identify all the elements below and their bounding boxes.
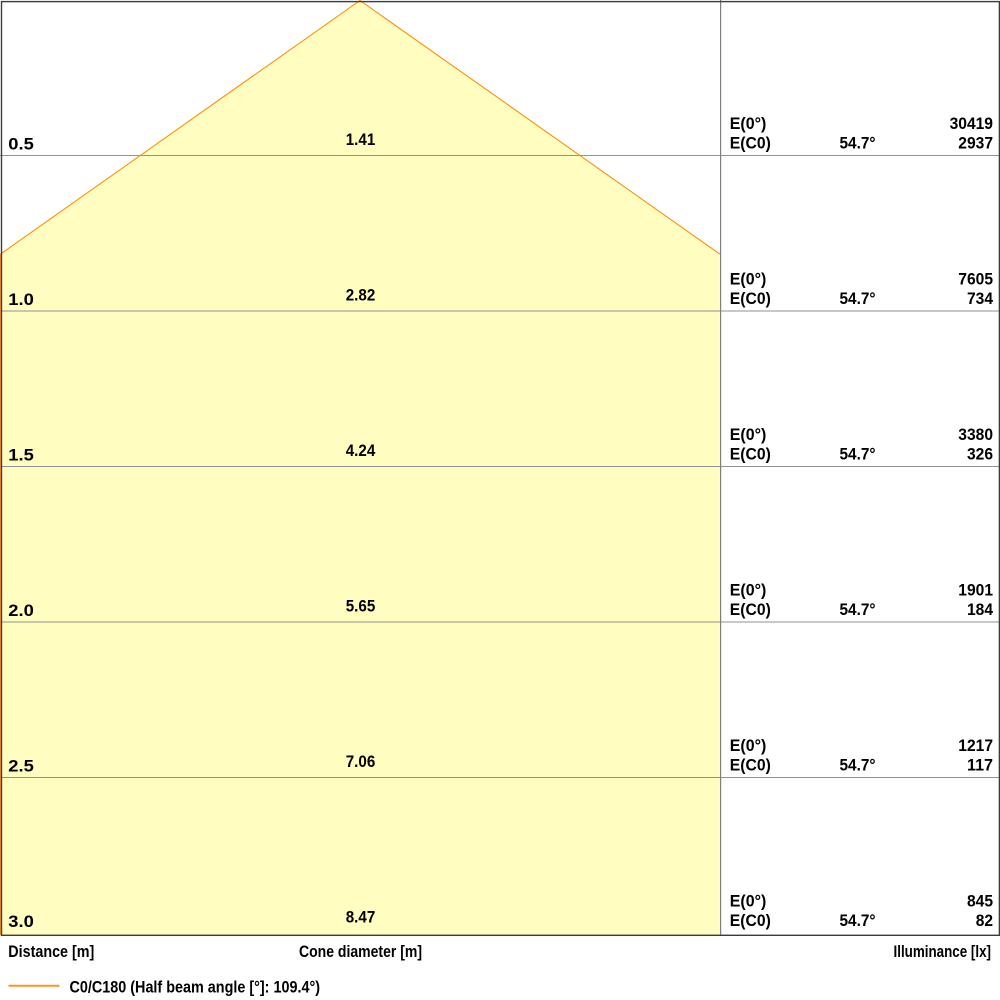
svg-text:1.0: 1.0 <box>8 291 34 309</box>
svg-text:1.5: 1.5 <box>8 447 34 465</box>
svg-text:0.5: 0.5 <box>8 136 34 154</box>
svg-text:2.82: 2.82 <box>346 287 376 305</box>
svg-text:184: 184 <box>967 601 994 619</box>
svg-text:326: 326 <box>967 446 993 464</box>
svg-text:5.65: 5.65 <box>346 598 376 616</box>
svg-text:1217: 1217 <box>958 737 993 755</box>
svg-text:117: 117 <box>967 757 993 775</box>
svg-text:54.7°: 54.7° <box>840 135 876 153</box>
svg-text:E(C0): E(C0) <box>730 601 771 619</box>
svg-text:2937: 2937 <box>958 135 993 153</box>
svg-text:7.06: 7.06 <box>346 753 376 771</box>
svg-text:2.5: 2.5 <box>8 758 34 776</box>
svg-text:54.7°: 54.7° <box>840 757 876 775</box>
svg-text:E(C0): E(C0) <box>730 446 771 464</box>
svg-text:54.7°: 54.7° <box>840 290 876 308</box>
svg-text:C0/C180 (Half beam angle [°]:: C0/C180 (Half beam angle [°]: 109.4°) <box>70 979 321 997</box>
svg-text:54.7°: 54.7° <box>840 446 876 464</box>
svg-text:E(0°): E(0°) <box>730 582 767 600</box>
svg-text:Cone diameter [m]: Cone diameter [m] <box>299 943 422 961</box>
svg-text:3.0: 3.0 <box>8 913 34 931</box>
svg-text:E(0°): E(0°) <box>730 737 767 755</box>
svg-text:E(0°): E(0°) <box>730 271 767 289</box>
svg-text:734: 734 <box>967 290 994 308</box>
svg-text:E(C0): E(C0) <box>730 290 771 308</box>
svg-text:4.24: 4.24 <box>346 442 376 460</box>
svg-text:54.7°: 54.7° <box>840 912 876 930</box>
svg-text:E(0°): E(0°) <box>730 115 767 133</box>
svg-text:1901: 1901 <box>958 582 993 600</box>
svg-text:3380: 3380 <box>958 426 993 444</box>
svg-text:2.0: 2.0 <box>8 602 34 620</box>
svg-text:E(C0): E(C0) <box>730 757 771 775</box>
svg-text:E(0°): E(0°) <box>730 426 767 444</box>
svg-text:82: 82 <box>976 912 993 930</box>
svg-text:E(0°): E(0°) <box>730 893 767 911</box>
svg-text:Distance [m]: Distance [m] <box>8 943 94 961</box>
svg-text:Illuminance [lx]: Illuminance [lx] <box>894 943 992 961</box>
svg-text:7605: 7605 <box>958 271 993 289</box>
svg-text:E(C0): E(C0) <box>730 912 771 930</box>
svg-text:54.7°: 54.7° <box>840 601 876 619</box>
svg-text:30419: 30419 <box>950 115 993 133</box>
svg-text:845: 845 <box>967 893 993 911</box>
svg-text:8.47: 8.47 <box>346 909 376 927</box>
svg-text:E(C0): E(C0) <box>730 135 771 153</box>
svg-text:1.41: 1.41 <box>346 131 376 149</box>
